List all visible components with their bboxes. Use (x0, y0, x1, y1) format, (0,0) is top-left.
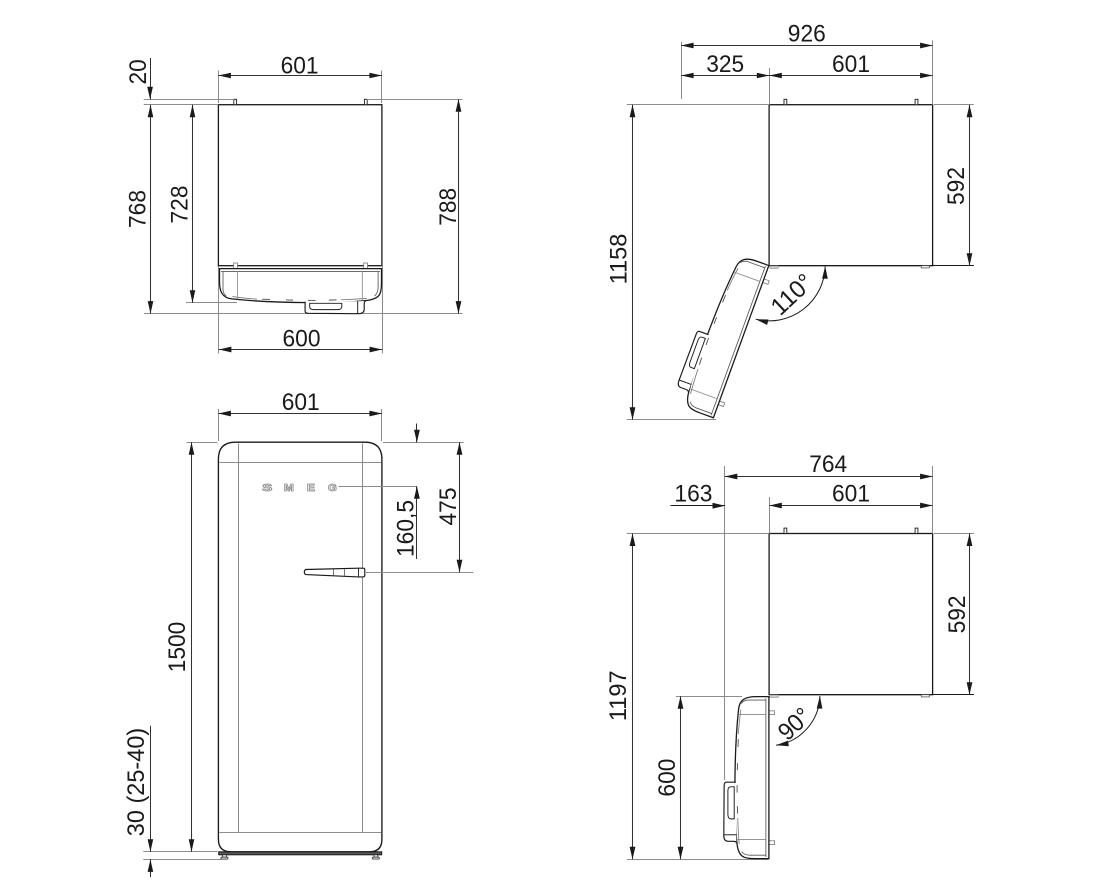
svg-text:163: 163 (674, 481, 712, 508)
svg-text:601: 601 (282, 389, 320, 416)
svg-text:600: 600 (283, 325, 321, 352)
svg-text:325: 325 (706, 51, 744, 78)
svg-text:601: 601 (832, 51, 870, 78)
svg-text:600: 600 (654, 759, 681, 797)
svg-text:S: S (262, 482, 272, 494)
svg-text:1500: 1500 (164, 622, 191, 673)
svg-text:764: 764 (809, 451, 847, 478)
svg-text:30 (25-40): 30 (25-40) (123, 728, 150, 837)
svg-text:601: 601 (832, 481, 870, 508)
svg-text:160,5: 160,5 (392, 500, 419, 557)
svg-text:20: 20 (125, 59, 152, 84)
svg-text:592: 592 (944, 595, 971, 633)
svg-text:E: E (307, 482, 315, 494)
svg-text:475: 475 (435, 488, 462, 526)
svg-text:M: M (284, 482, 294, 494)
svg-text:601: 601 (281, 53, 319, 80)
svg-text:1197: 1197 (605, 670, 632, 721)
svg-text:1158: 1158 (605, 234, 632, 285)
svg-text:728: 728 (166, 186, 193, 224)
svg-text:788: 788 (435, 188, 462, 226)
svg-text:768: 768 (125, 190, 152, 228)
svg-text:926: 926 (788, 21, 826, 48)
svg-text:G: G (328, 482, 337, 494)
svg-text:592: 592 (943, 167, 970, 205)
